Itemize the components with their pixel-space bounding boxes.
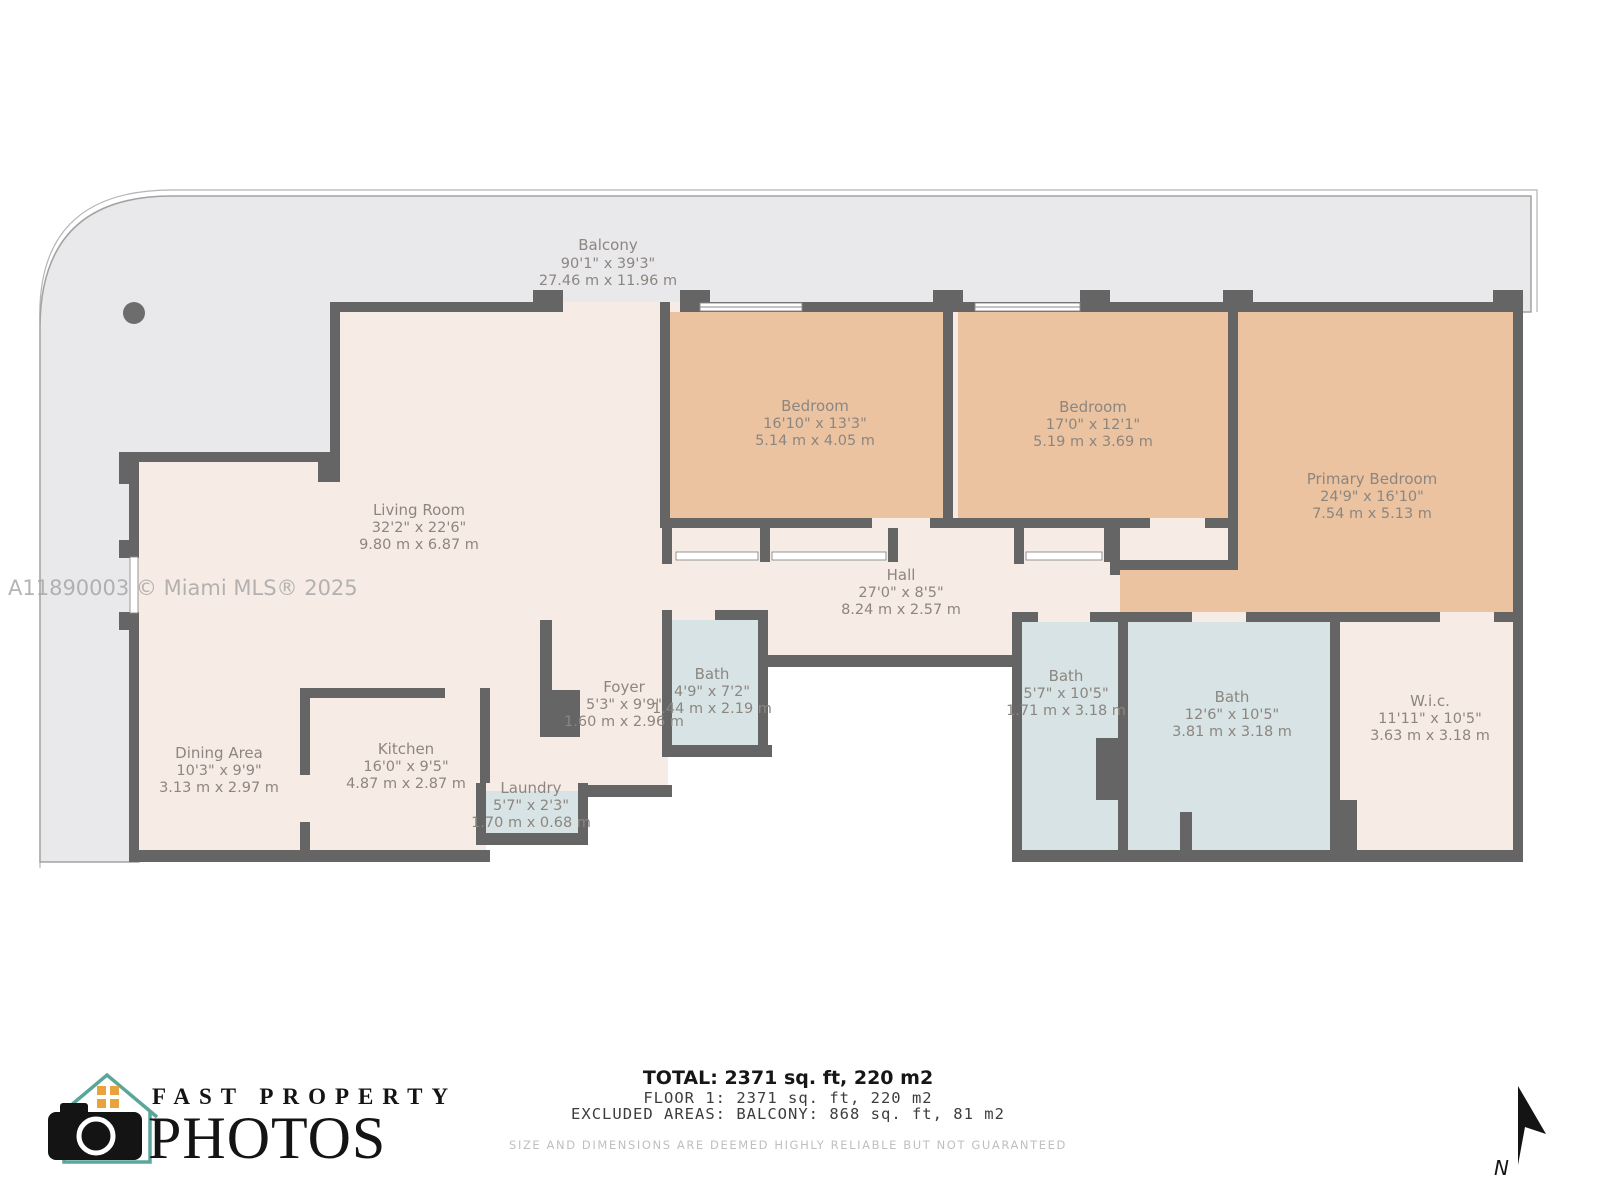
balcony-name: Balcony bbox=[578, 236, 638, 254]
laundry-name: Laundry bbox=[500, 779, 561, 797]
bath-a-dims-m: 1.71 m x 3.18 m bbox=[1006, 703, 1126, 719]
laundry-dims-ft: 5'7" x 2'3" bbox=[493, 798, 569, 814]
north-label: N bbox=[1494, 1156, 1509, 1180]
kitchen-name: Kitchen bbox=[378, 740, 434, 758]
bath-b-dims-ft: 12'6" x 10'5" bbox=[1185, 707, 1279, 723]
wic-dims-ft: 11'11" x 10'5" bbox=[1378, 711, 1482, 727]
bedroom2-name: Bedroom bbox=[1059, 398, 1127, 416]
bath-b-name: Bath bbox=[1215, 688, 1250, 706]
footer-totals: TOTAL: 2371 sq. ft, 220 m2 FLOOR 1: 2371… bbox=[509, 1067, 1067, 1152]
wic-name: W.i.c. bbox=[1410, 692, 1450, 710]
bath-a-name: Bath bbox=[1049, 667, 1084, 685]
living-room-dims-ft: 32'2" x 22'6" bbox=[372, 520, 466, 536]
kitchen-dims-ft: 16'0" x 9'5" bbox=[363, 759, 448, 775]
bedroom1-dims-m: 5.14 m x 4.05 m bbox=[755, 433, 875, 449]
laundry-dims-m: 1.70 m x 0.68 m bbox=[471, 815, 591, 831]
dining-area-dims-m: 3.13 m x 2.97 m bbox=[159, 780, 279, 796]
bath-b-dims-m: 3.81 m x 3.18 m bbox=[1172, 724, 1292, 740]
room-label-dining-area: Dining Area 10'3" x 9'9" 3.13 m x 2.97 m bbox=[159, 744, 279, 796]
room-label-living-room: Living Room 32'2" x 22'6" 9.80 m x 6.87 … bbox=[359, 501, 479, 553]
disclaimer-text: SIZE AND DIMENSIONS ARE DEEMED HIGHLY RE… bbox=[509, 1138, 1067, 1152]
logo-window-icon bbox=[97, 1086, 119, 1108]
north-arrow-icon bbox=[1518, 1086, 1546, 1165]
bath-foyer-dims-m: 1.44 m x 2.19 m bbox=[652, 701, 772, 717]
logo-line2: PHOTOS bbox=[148, 1105, 386, 1171]
bath-foyer-dims-ft: 4'9" x 7'2" bbox=[674, 684, 750, 700]
closet-slider-3 bbox=[1026, 552, 1102, 560]
hall-name: Hall bbox=[887, 566, 916, 584]
closet-slider-1 bbox=[676, 552, 758, 560]
primary-bedroom-dims-ft: 24'9" x 16'10" bbox=[1320, 489, 1424, 505]
structural-column bbox=[123, 302, 145, 324]
bedroom1-floor bbox=[670, 312, 948, 518]
foyer-dims-ft: 5'3" x 9'9" bbox=[586, 697, 662, 713]
hall-dims-m: 8.24 m x 2.57 m bbox=[841, 602, 961, 618]
floor-plan-drawing: Balcony 90'1" x 39'3" 27.46 m x 11.96 m … bbox=[0, 0, 1600, 1200]
balcony-dims-m: 27.46 m x 11.96 m bbox=[539, 273, 677, 289]
dining-area-name: Dining Area bbox=[175, 744, 263, 762]
primary-bedroom-name: Primary Bedroom bbox=[1307, 470, 1438, 488]
kitchen-dims-m: 4.87 m x 2.87 m bbox=[346, 776, 466, 792]
primary-bedroom-dims-m: 7.54 m x 5.13 m bbox=[1312, 506, 1432, 522]
total-area-text: TOTAL: 2371 sq. ft, 220 m2 bbox=[643, 1067, 933, 1089]
logo-camera-icon bbox=[48, 1103, 142, 1160]
bedroom1-name: Bedroom bbox=[781, 397, 849, 415]
north-compass: N bbox=[1494, 1086, 1546, 1180]
bedroom2-dims-ft: 17'0" x 12'1" bbox=[1046, 417, 1140, 433]
living-room-dims-m: 9.80 m x 6.87 m bbox=[359, 537, 479, 553]
excluded-area-text: EXCLUDED AREAS: BALCONY: 868 sq. ft, 81 … bbox=[571, 1105, 1005, 1123]
bedroom1-dims-ft: 16'10" x 13'3" bbox=[763, 416, 867, 432]
bedroom2-dims-m: 5.19 m x 3.69 m bbox=[1033, 434, 1153, 450]
fast-property-photos-logo: FAST PROPERTY PHOTOS bbox=[48, 1075, 457, 1171]
balcony-dims-ft: 90'1" x 39'3" bbox=[561, 256, 655, 272]
closet-slider-2 bbox=[772, 552, 886, 560]
living-room-name: Living Room bbox=[373, 501, 465, 519]
room-label-primary-bedroom: Primary Bedroom 24'9" x 16'10" 7.54 m x … bbox=[1307, 470, 1438, 522]
bath-a-dims-ft: 5'7" x 10'5" bbox=[1023, 686, 1108, 702]
mls-watermark: A11890003 © Miami MLS® 2025 bbox=[8, 576, 358, 600]
bath-a-floor bbox=[1022, 622, 1118, 850]
hall-dims-ft: 27'0" x 8'5" bbox=[858, 585, 943, 601]
floor-plan-page: Balcony 90'1" x 39'3" 27.46 m x 11.96 m … bbox=[0, 0, 1600, 1200]
wic-dims-m: 3.63 m x 3.18 m bbox=[1370, 728, 1490, 744]
dining-area-dims-ft: 10'3" x 9'9" bbox=[176, 763, 261, 779]
bath-foyer-name: Bath bbox=[695, 665, 730, 683]
foyer-name: Foyer bbox=[603, 678, 645, 696]
